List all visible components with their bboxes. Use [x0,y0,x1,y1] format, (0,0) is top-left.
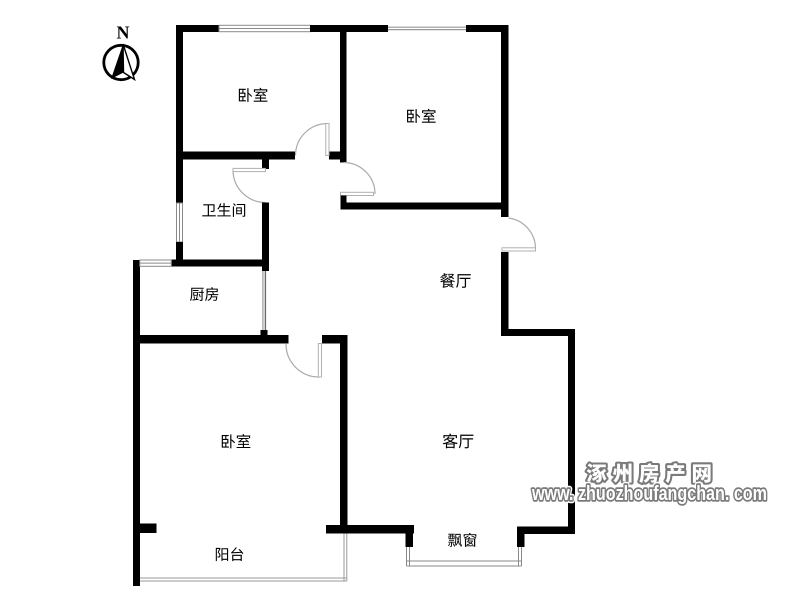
svg-text:N: N [117,23,130,43]
svg-text:www. zhuozhoufangchan. com: www. zhuozhoufangchan. com [531,483,767,505]
